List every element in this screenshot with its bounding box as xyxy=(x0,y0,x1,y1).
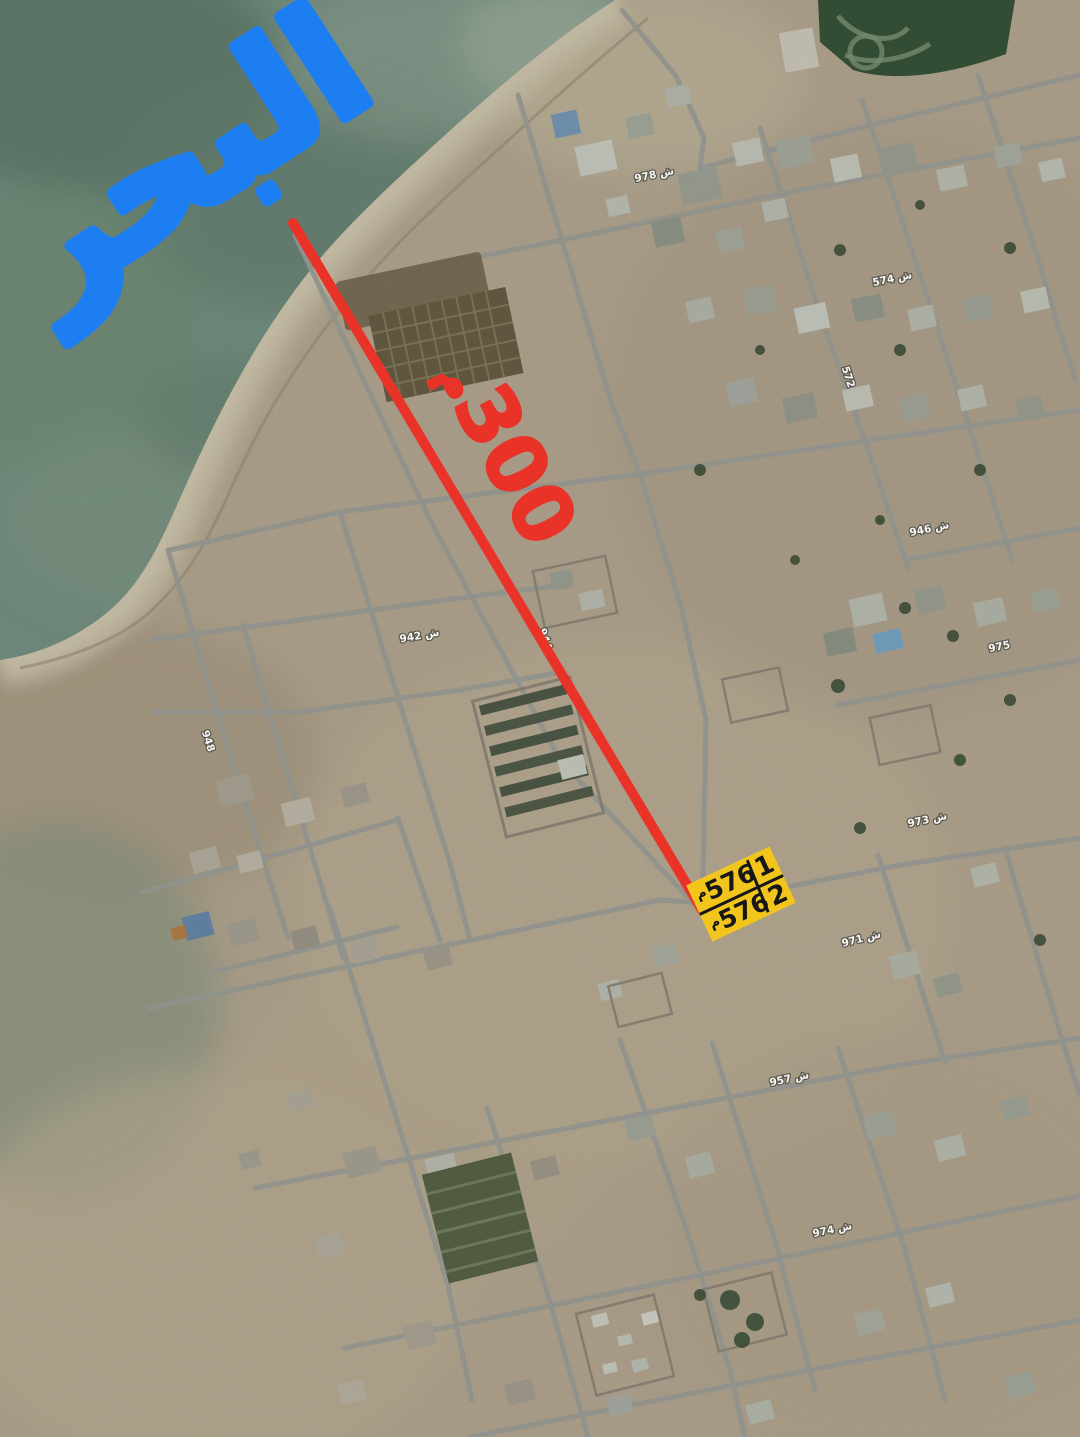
satellite-map: 978 ش574 ش572946 ش944942 ش975948973 ش971… xyxy=(0,0,1080,1437)
map-screenshot: 978 ش574 ش572946 ش944942 ش975948973 ش971… xyxy=(0,0,1080,1437)
